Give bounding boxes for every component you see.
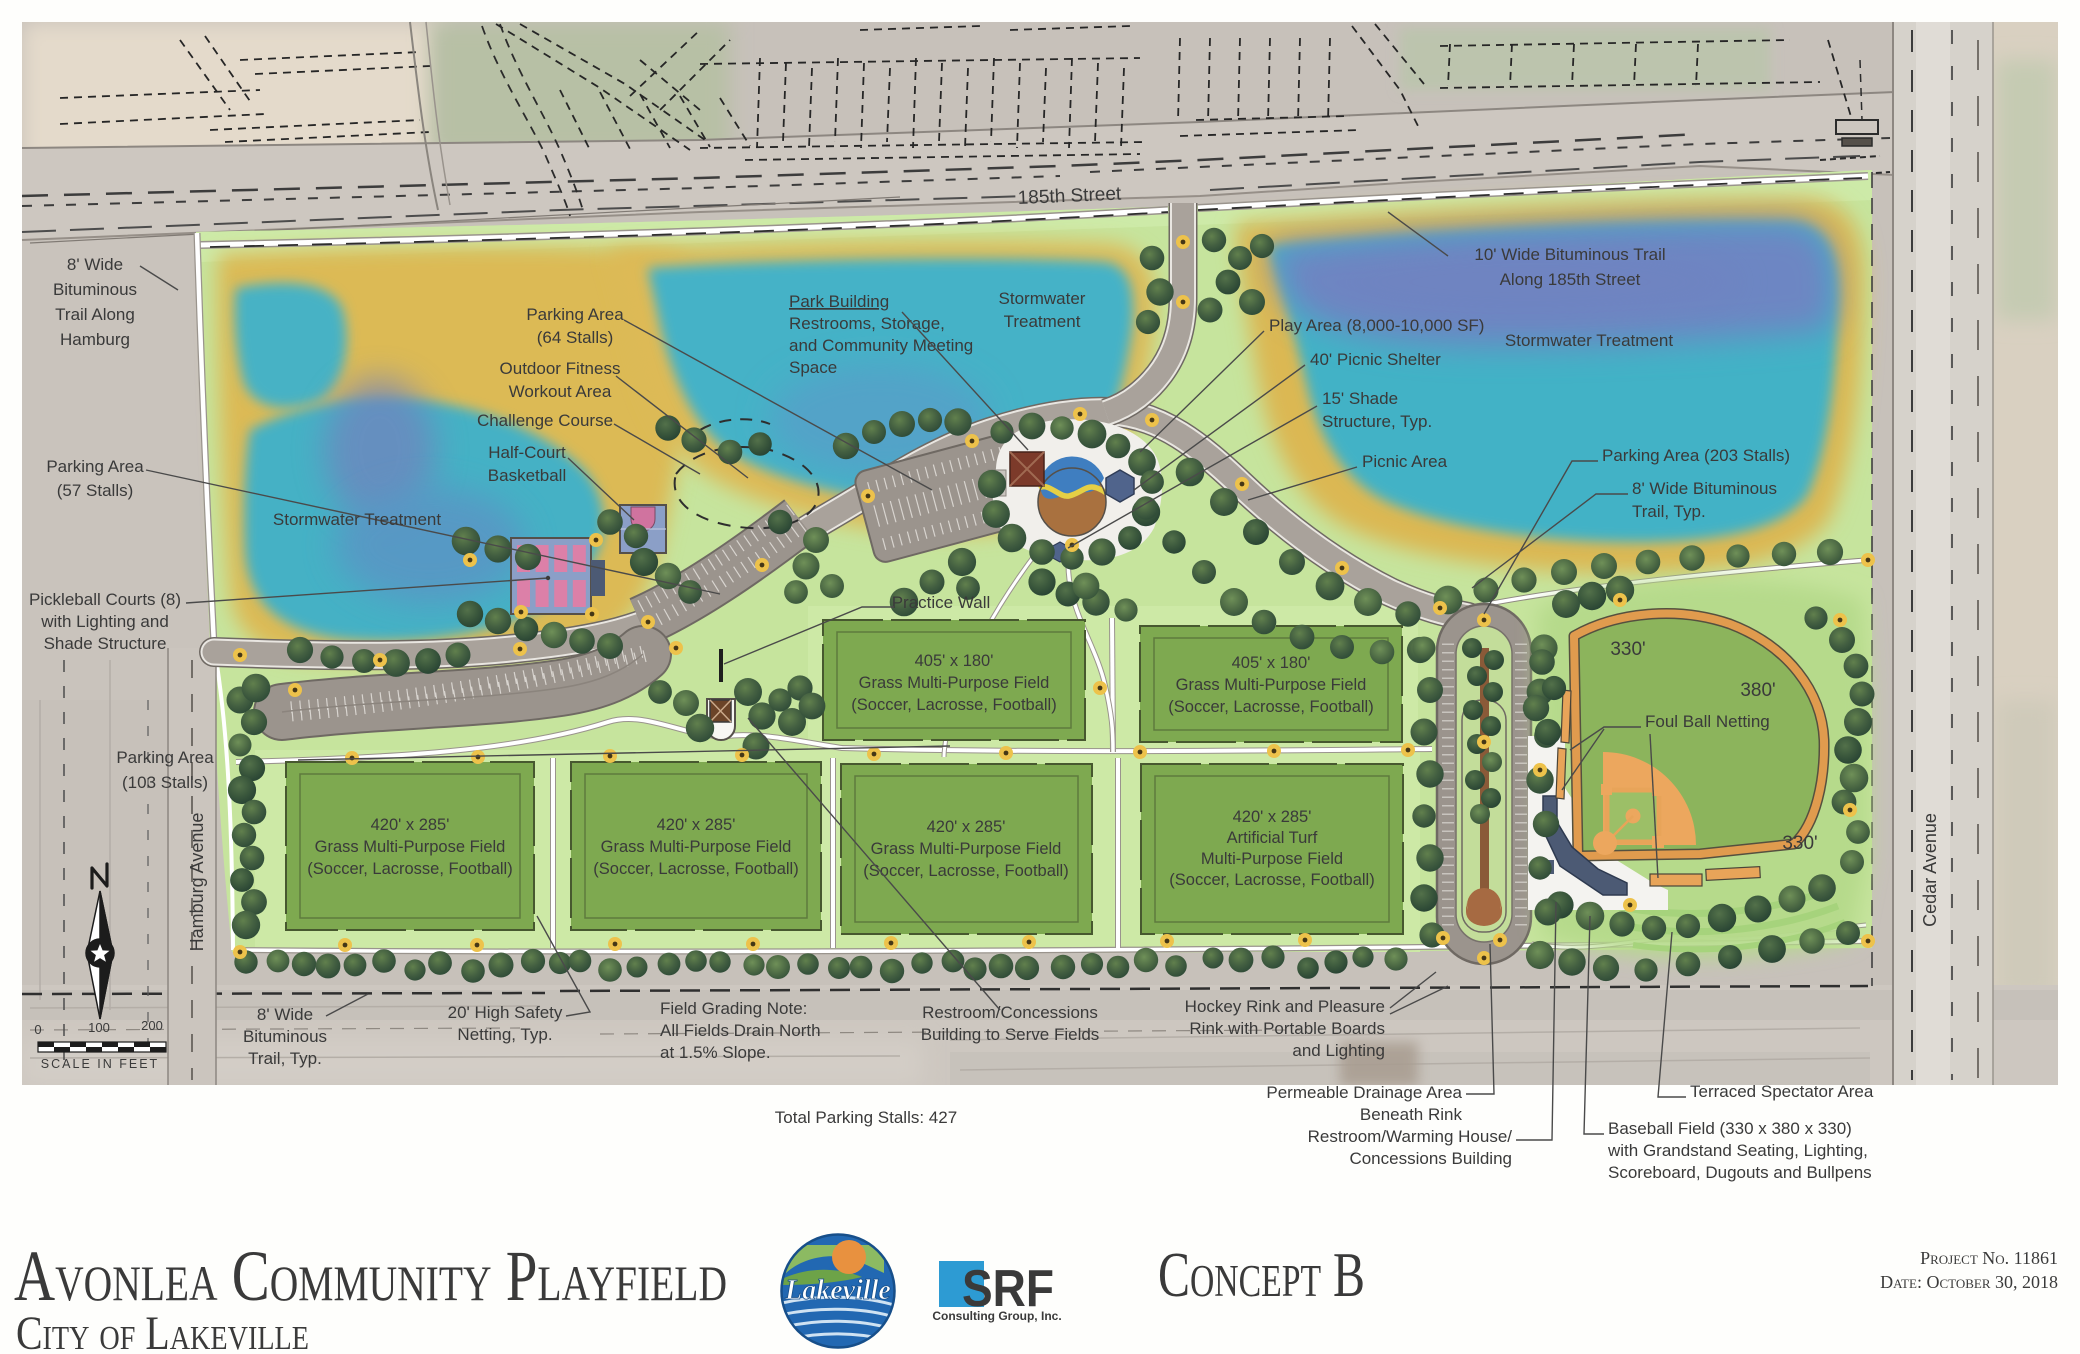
svg-text:Total Parking Stalls: 427: Total Parking Stalls: 427 [775, 1108, 957, 1127]
svg-text:Hamburg Avenue: Hamburg Avenue [187, 813, 207, 952]
svg-text:330': 330' [1610, 639, 1645, 660]
svg-text:Project No. 11861: Project No. 11861 [1920, 1248, 2058, 1268]
svg-text:Foul Ball Netting: Foul Ball Netting [1645, 712, 1770, 731]
svg-text:Baseball Field (330 x 380 x 33: Baseball Field (330 x 380 x 330)with Gra… [1607, 1119, 1872, 1182]
svg-text:380': 380' [1740, 680, 1775, 701]
svg-text:Stormwater Treatment: Stormwater Treatment [1505, 331, 1673, 350]
svg-text:Pickleball Courts (8)with Ligh: Pickleball Courts (8)with Lighting andSh… [29, 590, 181, 653]
svg-text:Challenge Course: Challenge Course [477, 411, 613, 430]
svg-text:Lakeville: Lakeville [784, 1275, 891, 1306]
svg-text:Stormwater Treatment: Stormwater Treatment [273, 510, 441, 529]
svg-text:Cedar Avenue: Cedar Avenue [1920, 813, 1940, 927]
svg-text:Avonlea Community Playfield: Avonlea Community Playfield [14, 1236, 727, 1316]
svg-text:100: 100 [88, 1020, 110, 1035]
svg-text:Consulting Group, Inc.: Consulting Group, Inc. [932, 1309, 1061, 1323]
svg-text:Date: October 30, 2018: Date: October 30, 2018 [1880, 1272, 2058, 1292]
svg-text:200: 200 [141, 1018, 163, 1033]
svg-text:SCALE IN FEET: SCALE IN FEET [41, 1057, 159, 1071]
svg-text:40' Picnic Shelter: 40' Picnic Shelter [1310, 350, 1441, 369]
svg-text:Picnic Area: Picnic Area [1362, 452, 1448, 471]
svg-text:Play Area (8,000-10,000 SF): Play Area (8,000-10,000 SF) [1269, 316, 1484, 335]
svg-text:Parking Area (203 Stalls): Parking Area (203 Stalls) [1602, 446, 1790, 465]
svg-text:Practice Wall: Practice Wall [892, 593, 991, 612]
svg-text:City of Lakeville: City of Lakeville [16, 1307, 309, 1354]
svg-text:Concept B: Concept B [1158, 1239, 1365, 1310]
svg-text:0: 0 [34, 1022, 41, 1037]
svg-text:Terraced Spectator Area: Terraced Spectator Area [1690, 1082, 1874, 1101]
svg-text:330': 330' [1782, 833, 1817, 854]
